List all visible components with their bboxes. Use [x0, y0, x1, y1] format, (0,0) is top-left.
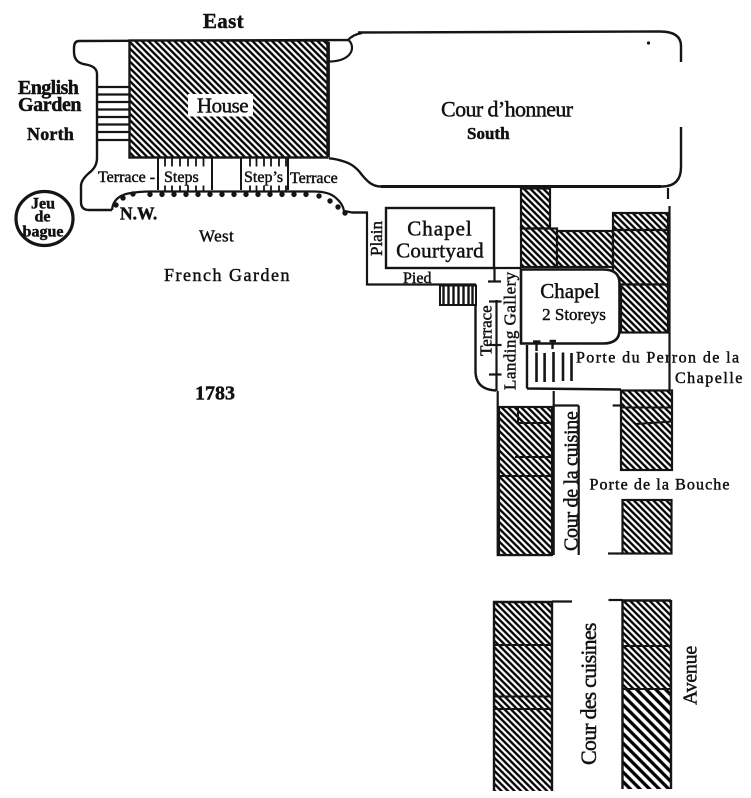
- svg-text:South: South: [467, 124, 510, 143]
- svg-text:West: West: [199, 227, 234, 246]
- svg-text:bague: bague: [23, 224, 64, 241]
- svg-text:Landing Gallery: Landing Gallery: [501, 271, 520, 390]
- svg-text:Step’s: Step’s: [244, 169, 283, 186]
- svg-text:Steps: Steps: [164, 169, 199, 186]
- svg-text:Chapel: Chapel: [540, 279, 600, 303]
- svg-text:Porte du Perron de la: Porte du Perron de la: [576, 350, 740, 367]
- svg-text:Chapelle: Chapelle: [675, 370, 744, 387]
- svg-text:North: North: [27, 124, 74, 144]
- svg-text:Porte de la Bouche: Porte de la Bouche: [590, 477, 731, 494]
- svg-text:Plain: Plain: [367, 221, 386, 256]
- svg-text:French Garden: French Garden: [164, 265, 291, 285]
- svg-text:Terrace: Terrace: [477, 305, 496, 356]
- svg-text:N.W.: N.W.: [120, 204, 157, 224]
- svg-text:Chapel: Chapel: [407, 217, 472, 241]
- svg-text:Cour d’honneur: Cour d’honneur: [441, 97, 574, 122]
- svg-text:Cour de la cuisine: Cour de la cuisine: [561, 411, 583, 551]
- svg-text:Cour des cuisines: Cour des cuisines: [576, 623, 601, 765]
- svg-text:Pied: Pied: [403, 270, 431, 287]
- svg-text:1783: 1783: [195, 383, 235, 405]
- svg-text:Terrace -: Terrace -: [98, 169, 155, 186]
- svg-text:East: East: [203, 9, 244, 33]
- svg-text:House: House: [197, 94, 248, 118]
- svg-text:Terrace: Terrace: [290, 170, 338, 187]
- svg-text:Courtyard: Courtyard: [396, 239, 484, 263]
- svg-text:Avenue: Avenue: [680, 646, 702, 705]
- svg-text:2 Storeys: 2 Storeys: [542, 305, 606, 324]
- svg-text:Garden: Garden: [18, 94, 81, 116]
